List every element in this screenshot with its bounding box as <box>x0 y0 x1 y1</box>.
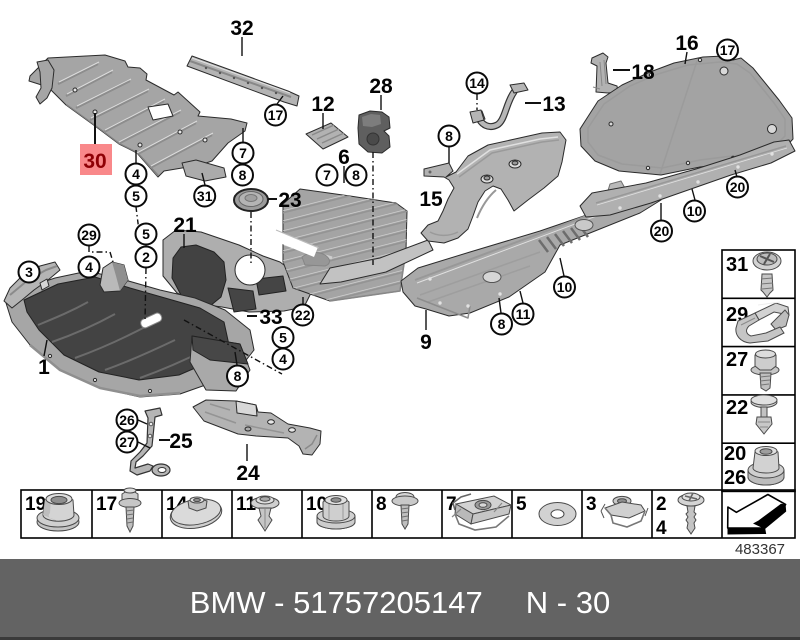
svg-text:9: 9 <box>420 331 432 354</box>
svg-text:10: 10 <box>557 279 573 295</box>
svg-text:16: 16 <box>675 32 698 55</box>
svg-text:32: 32 <box>230 17 253 40</box>
svg-text:2: 2 <box>656 494 667 515</box>
svg-text:13: 13 <box>542 93 565 116</box>
svg-text:18: 18 <box>631 61 655 84</box>
svg-text:27: 27 <box>119 434 135 450</box>
svg-text:20: 20 <box>724 443 746 465</box>
svg-text:11: 11 <box>516 306 531 322</box>
svg-text:15: 15 <box>419 188 443 211</box>
svg-text:17: 17 <box>720 42 736 58</box>
svg-text:3: 3 <box>586 494 597 515</box>
svg-text:5: 5 <box>132 188 140 204</box>
svg-text:5: 5 <box>142 226 150 242</box>
svg-text:1: 1 <box>38 356 50 379</box>
svg-text:3: 3 <box>25 264 33 280</box>
svg-text:5: 5 <box>516 494 527 515</box>
svg-text:10: 10 <box>687 203 703 219</box>
svg-text:8: 8 <box>498 316 506 332</box>
svg-text:483367: 483367 <box>735 541 785 558</box>
svg-text:2: 2 <box>142 249 150 265</box>
svg-text:26: 26 <box>724 467 746 489</box>
svg-text:14: 14 <box>469 75 485 91</box>
svg-text:17: 17 <box>268 107 284 123</box>
svg-text:22: 22 <box>726 397 748 419</box>
svg-text:21: 21 <box>173 214 197 237</box>
svg-text:5: 5 <box>279 330 287 346</box>
svg-text:26: 26 <box>119 412 135 428</box>
svg-text:30: 30 <box>83 150 106 173</box>
svg-text:17: 17 <box>96 494 117 515</box>
svg-text:31: 31 <box>197 188 213 204</box>
svg-text:4: 4 <box>656 518 667 539</box>
svg-text:25: 25 <box>169 430 193 453</box>
svg-text:7: 7 <box>239 145 247 161</box>
svg-text:8: 8 <box>239 167 247 183</box>
svg-text:20: 20 <box>730 179 746 195</box>
svg-text:8: 8 <box>445 128 453 144</box>
svg-text:BMW - 51757205147 N - 30: BMW - 51757205147 N - 30 <box>190 585 610 620</box>
svg-text:31: 31 <box>726 254 748 276</box>
svg-text:24: 24 <box>236 462 260 485</box>
svg-text:8: 8 <box>234 368 242 384</box>
svg-text:29: 29 <box>81 227 97 243</box>
svg-text:6: 6 <box>338 146 350 169</box>
svg-text:27: 27 <box>726 349 748 371</box>
svg-text:4: 4 <box>85 259 93 275</box>
svg-text:8: 8 <box>376 494 387 515</box>
svg-text:20: 20 <box>654 223 670 239</box>
svg-text:12: 12 <box>311 93 334 116</box>
svg-text:23: 23 <box>278 189 301 212</box>
svg-text:4: 4 <box>279 351 287 367</box>
svg-text:7: 7 <box>323 167 331 183</box>
svg-text:22: 22 <box>295 307 311 323</box>
svg-text:4: 4 <box>132 166 140 182</box>
svg-text:8: 8 <box>352 167 360 183</box>
svg-text:33: 33 <box>259 306 282 329</box>
svg-text:28: 28 <box>369 75 393 98</box>
